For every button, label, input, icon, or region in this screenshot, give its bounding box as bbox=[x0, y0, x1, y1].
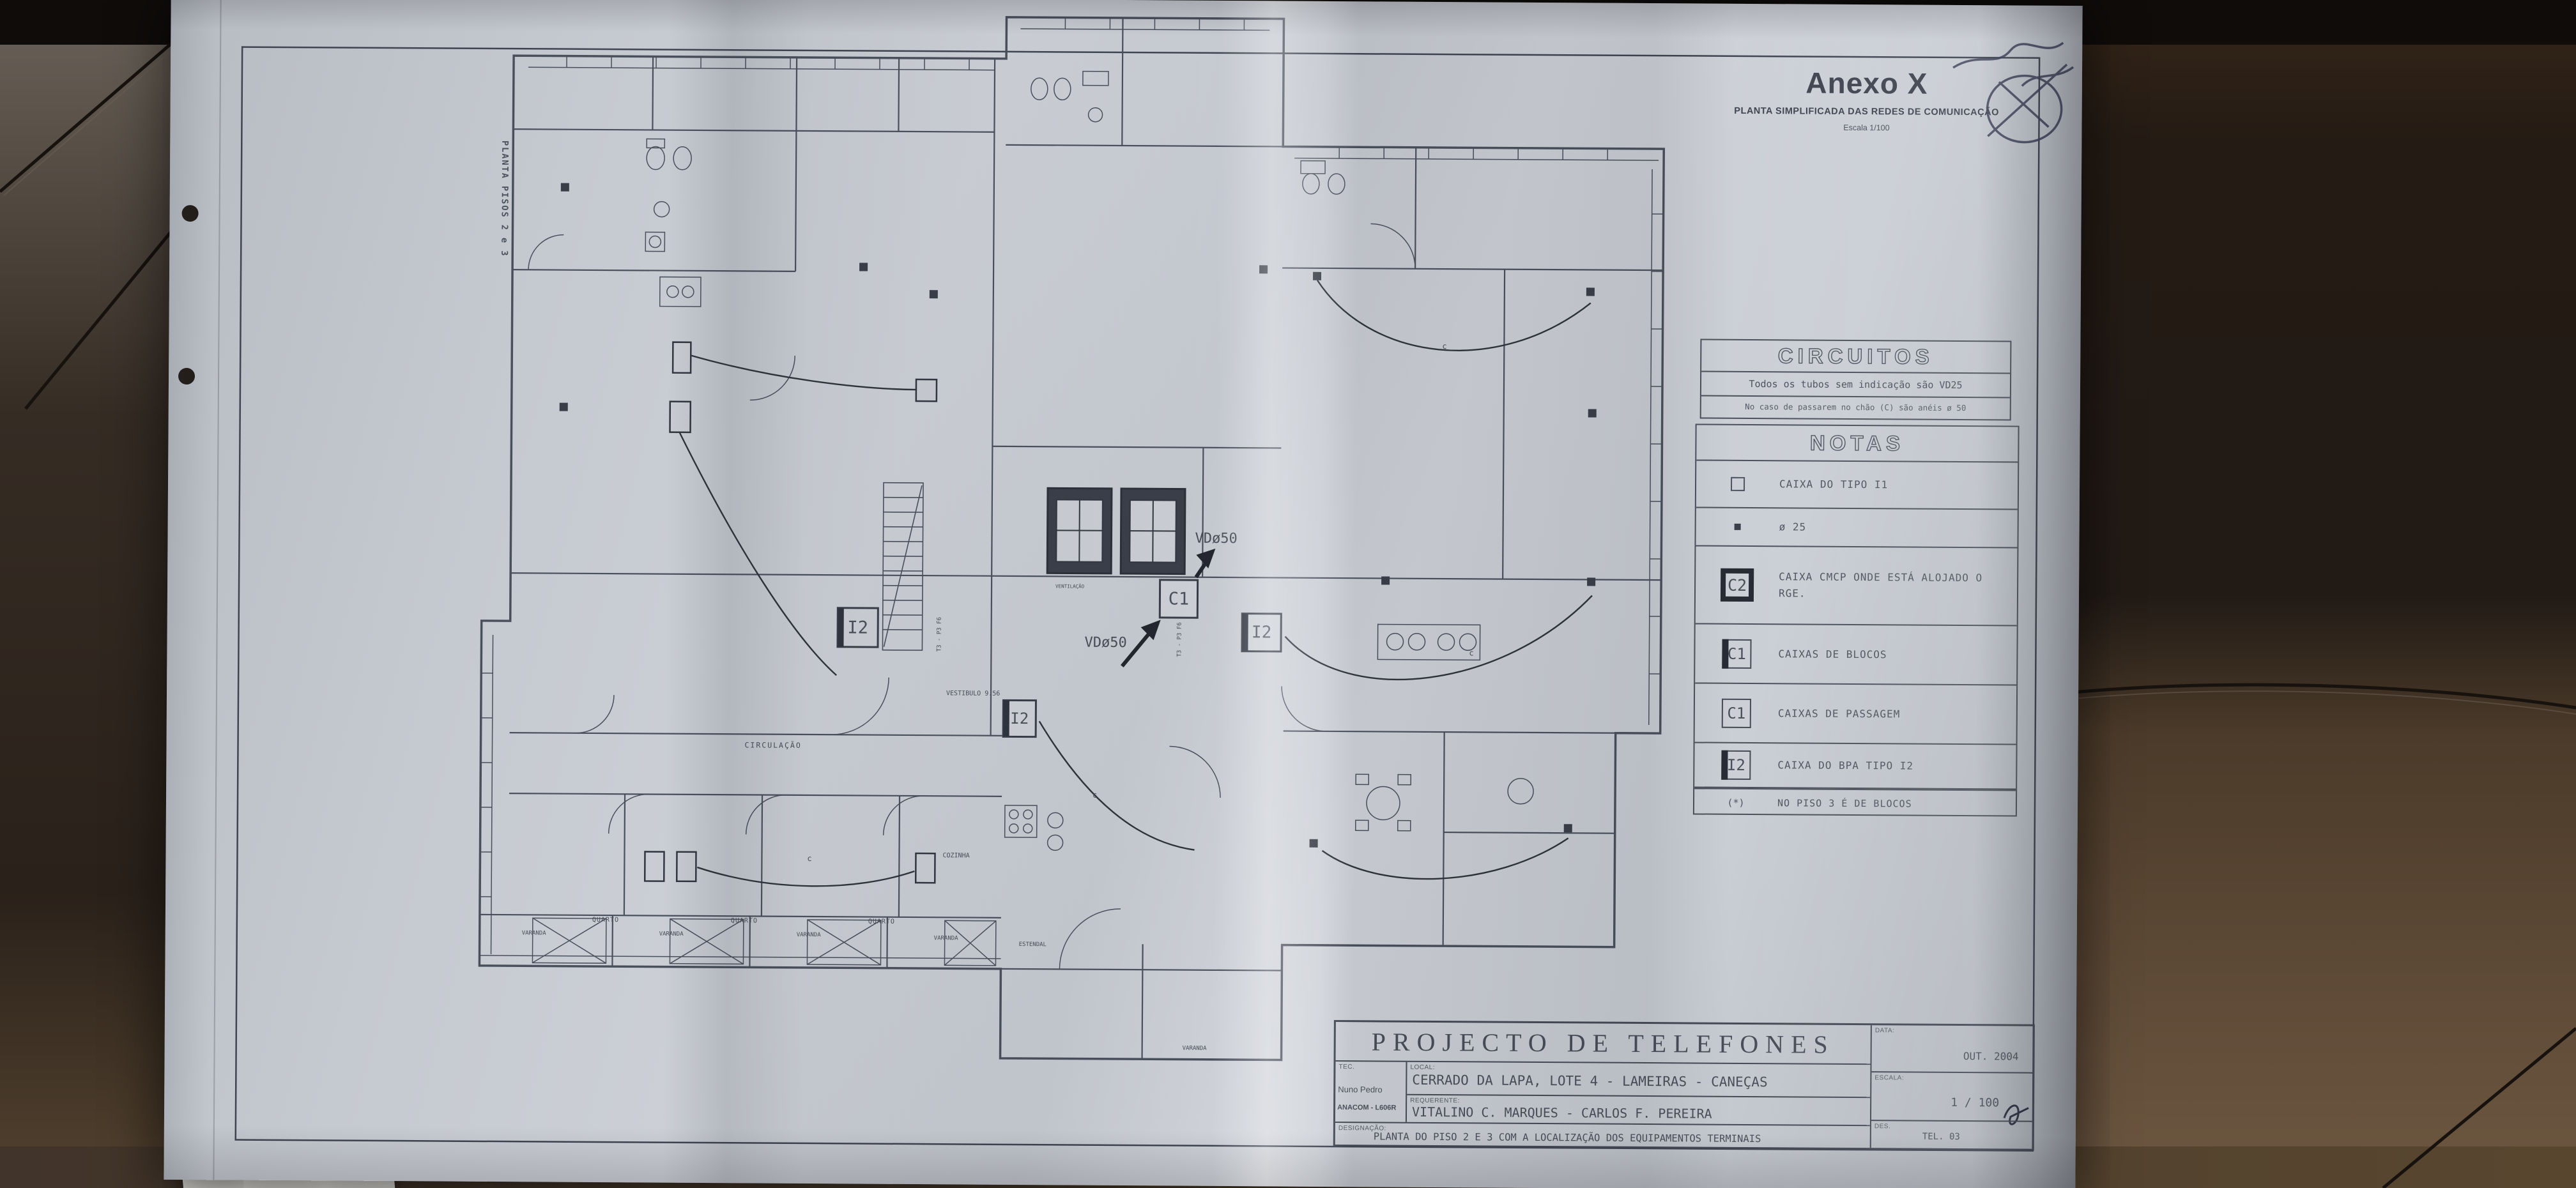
des-value: TEL. 03 bbox=[1922, 1132, 1960, 1142]
plan-side-label: PLANTA PISOS 2 e 3 bbox=[499, 141, 510, 257]
notas-label: ø 25 bbox=[1779, 519, 1997, 537]
cable-label-3: c bbox=[1092, 791, 1097, 800]
annex-header: Anexo X PLANTA SIMPLIFICADA DAS REDES DE… bbox=[1694, 65, 2039, 133]
circuitos-line-2: No caso de passarem no chão (C) são anéi… bbox=[1701, 397, 2010, 420]
footnote-marker: (*) bbox=[1694, 796, 1777, 809]
room-label-varanda-5: VARANDA bbox=[1183, 1046, 1207, 1052]
data-cell: DATA: OUT. 2004 bbox=[1871, 1025, 2032, 1072]
project-title: PROJECTO DE TELEFONES bbox=[1336, 1022, 1871, 1065]
escala-cell: ESCALA: 1 / 100 bbox=[1871, 1071, 2032, 1121]
title-block-right-column: DATA: OUT. 2004 ESCALA: 1 / 100 DES. TEL… bbox=[1870, 1025, 2033, 1149]
punch-hole-top bbox=[182, 205, 199, 222]
room-label-varanda-1: VARANDA bbox=[522, 930, 546, 936]
plan-c1-box: C1 bbox=[1159, 579, 1199, 618]
apartment-type-label-2: T3 - P3 F6 bbox=[1176, 622, 1183, 657]
room-label-varanda-2: VARANDA bbox=[659, 931, 684, 938]
data-value: OUT. 2004 bbox=[1963, 1050, 2019, 1063]
tec-id: ANACOM - L606R bbox=[1337, 1104, 1396, 1112]
circuitos-line-1: Todos os tubos sem indicação são VD25 bbox=[1701, 372, 2010, 399]
room-label-quarto-3: QUARTO bbox=[868, 918, 895, 925]
elevator-cores bbox=[1047, 488, 1185, 574]
leather-right bbox=[2032, 0, 2576, 1188]
designacao-cell: DESIGNAÇÃO: PLANTA DO PISO 2 E 3 COM A L… bbox=[1335, 1122, 1870, 1150]
notas-row-o25: ø 25 bbox=[1696, 508, 2017, 548]
local-label: LOCAL: bbox=[1410, 1064, 1435, 1071]
punch-hole-bottom bbox=[178, 368, 195, 385]
notas-row-tipo-i1: CAIXA DO TIPO I1 bbox=[1696, 461, 2018, 510]
cable-label-1: c bbox=[807, 854, 811, 863]
notas-row-c1-blocos: C1 CAIXAS DE BLOCOS bbox=[1695, 624, 2017, 685]
footnote-text: NO PISO 3 É DE BLOCOS bbox=[1777, 795, 1995, 812]
designacao-value: PLANTA DO PISO 2 E 3 COM A LOCALIZAÇÃO D… bbox=[1374, 1131, 1761, 1145]
annex-subtitle: PLANTA SIMPLIFICADA DAS REDES DE COMUNIC… bbox=[1694, 105, 2039, 118]
apartment-type-label-1: T3 - P3 F6 bbox=[936, 617, 942, 651]
room-label-quarto-2: QUARTO bbox=[731, 917, 758, 924]
notas-legend: NOTAS CAIXA DO TIPO I1 ø 25 C2 CAIXA CMC… bbox=[1693, 423, 2020, 816]
vd50-label-upper: VDø50 bbox=[1195, 531, 1237, 547]
stairs bbox=[882, 483, 923, 650]
room-label-estendal: ESTENDAL bbox=[1019, 941, 1046, 948]
building bbox=[479, 14, 1665, 1062]
plan-i2-box-2: I2 bbox=[1002, 699, 1037, 738]
circuitos-title: CIRCUITOS bbox=[1701, 340, 2010, 374]
open-square-symbol bbox=[1731, 477, 1745, 491]
c2-box-symbol: C2 bbox=[1721, 568, 1754, 602]
room-label-varanda-4: VARANDA bbox=[934, 935, 958, 941]
photo-of-telephone-project-drawing: PLANTA PISOS 2 e 3 VDø50 VDø50 C1 I2 I2 … bbox=[0, 0, 2576, 1188]
room-label-varanda-3: VARANDA bbox=[797, 932, 821, 938]
notas-label: CAIXAS DE BLOCOS bbox=[1778, 646, 1995, 664]
i2-thick-bar bbox=[838, 608, 843, 646]
des-cell: DES. TEL. 03 bbox=[1871, 1120, 2032, 1149]
i2-thick-bar bbox=[1004, 701, 1009, 736]
left-fold-line bbox=[213, 0, 220, 1180]
tec-name: Nuno Pedro bbox=[1338, 1085, 1382, 1094]
data-label: DATA: bbox=[1875, 1027, 1895, 1034]
annex-title: Anexo X bbox=[1694, 65, 2039, 101]
c1-thickbar-box-symbol: C1 bbox=[1722, 639, 1751, 668]
filled-square-symbol bbox=[1735, 524, 1741, 530]
circuitos-legend: CIRCUITOS Todos os tubos sem indicação s… bbox=[1700, 339, 2012, 421]
i2-box-symbol: I2 bbox=[1721, 750, 1751, 780]
plan-i2-box-3: I2 bbox=[1241, 613, 1282, 652]
room-label-cozinha: COZINHA bbox=[942, 852, 969, 859]
escala-label: ESCALA: bbox=[1874, 1074, 1904, 1081]
junction-boxes bbox=[645, 342, 938, 883]
requerente-value: VITALINO C. MARQUES - CARLOS F. PEREIRA bbox=[1412, 1104, 1712, 1122]
c1-box-symbol: C1 bbox=[1722, 698, 1751, 727]
notas-label: CAIXA DO BPA TIPO I2 bbox=[1777, 757, 1995, 775]
drawing-sheet: PLANTA PISOS 2 e 3 VDø50 VDø50 C1 I2 I2 … bbox=[164, 0, 2082, 1188]
notas-label: CAIXAS DE PASSAGEM bbox=[1778, 705, 1995, 723]
room-label-vestibulo: VESTIBULO 9.56 bbox=[946, 690, 1000, 697]
tec-label: TEC. bbox=[1338, 1063, 1354, 1070]
local-cell: LOCAL: CERRADO DA LAPA, LOTE 4 - LAMEIRA… bbox=[1407, 1062, 1870, 1097]
des-label: DES. bbox=[1874, 1123, 1890, 1130]
plan-i2-box-1: I2 bbox=[836, 607, 878, 648]
notas-row-c2: C2 CAIXA CMCP ONDE ESTÁ ALOJADO O RGE. bbox=[1696, 546, 2018, 626]
i2-thick-bar bbox=[1242, 614, 1248, 651]
cable-label-2: c bbox=[1469, 648, 1473, 657]
requerente-label: REQUERENTE: bbox=[1410, 1097, 1460, 1104]
requerente-cell: REQUERENTE: VITALINO C. MARQUES - CARLOS… bbox=[1407, 1094, 1870, 1125]
room-label-circulacao: CIRCULAÇÃO bbox=[744, 740, 801, 750]
room-label-ventilacao: VENTILAÇÃO bbox=[1055, 583, 1084, 589]
title-block: PROJECTO DE TELEFONES TEC. Nuno Pedro AN… bbox=[1333, 1020, 2035, 1151]
notas-row-i2: I2 CAIXA DO BPA TIPO I2 bbox=[1694, 743, 2016, 789]
telephone-cables bbox=[677, 277, 1594, 891]
escala-value: 1 / 100 bbox=[1951, 1096, 1999, 1109]
local-value: CERRADO DA LAPA, LOTE 4 - LAMEIRAS - CAN… bbox=[1412, 1072, 1767, 1090]
notas-footnote-row: (*) NO PISO 3 É DE BLOCOS bbox=[1694, 788, 2016, 818]
notas-label: CAIXA CMCP ONDE ESTÁ ALOJADO O RGE. bbox=[1779, 569, 1989, 603]
notas-label: CAIXA DO TIPO I1 bbox=[1779, 476, 1997, 494]
tec-cell: TEC. Nuno Pedro ANACOM - L606R bbox=[1335, 1062, 1407, 1122]
vd50-label-lower: VDø50 bbox=[1084, 635, 1126, 651]
notas-row-c1-passagem: C1 CAIXAS DE PASSAGEM bbox=[1695, 683, 2017, 745]
notas-title: NOTAS bbox=[1696, 425, 2018, 462]
cable-label-4: c bbox=[1442, 342, 1446, 351]
room-label-quarto-1: QUARTO bbox=[592, 917, 619, 924]
bath-kitchen-fixtures bbox=[642, 68, 1538, 853]
